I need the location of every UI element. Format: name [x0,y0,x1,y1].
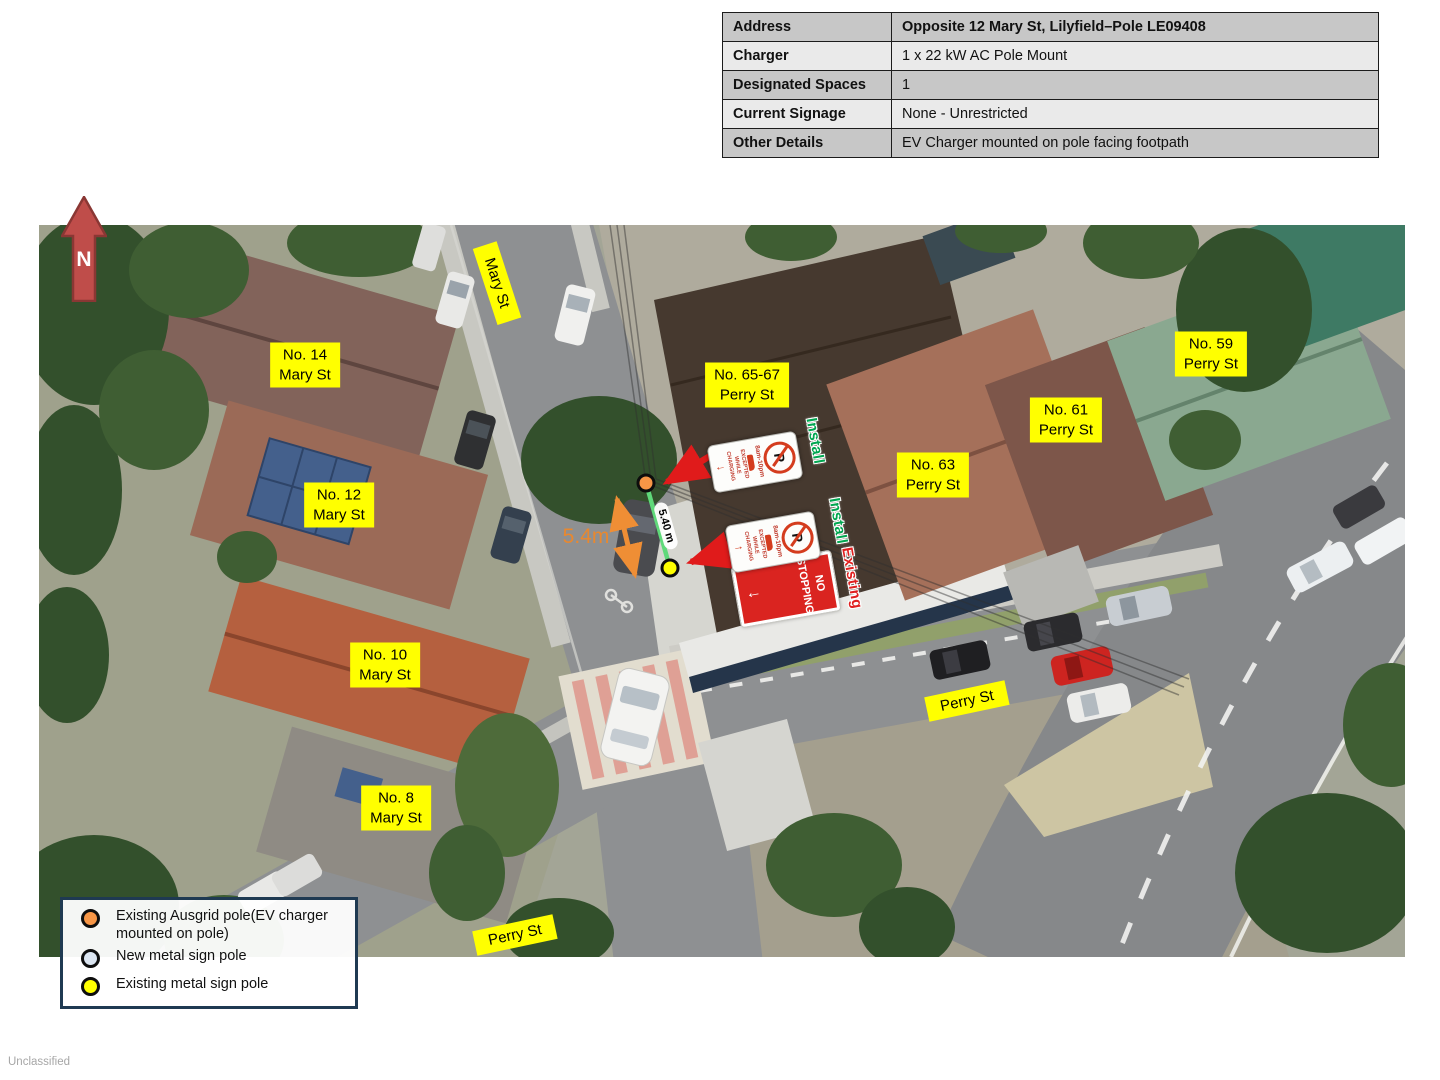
row-value: 1 x 22 kW AC Pole Mount [892,42,1379,71]
legend-item-text: New metal sign pole [116,948,247,966]
sign-exception: EXCEPTED WHILE CHARGING [741,524,768,567]
legend-item-text: Existing metal sign pole [116,976,268,994]
existing-metal-sign-pole-marker [661,559,680,578]
row-value: Opposite 12 Mary St, Lilyfield–Pole LE09… [892,13,1379,42]
house-label-59-perry: No. 59Perry St [1175,332,1247,377]
table-row: Designated Spaces 1 [723,71,1379,100]
house-label-12-mary: No. 12Mary St [304,483,374,528]
row-label: Designated Spaces [723,71,892,100]
existing-sign-pole-legend-icon [81,977,100,996]
house-label-10-mary: No. 10Mary St [350,643,420,688]
house-label-8-mary: No. 8Mary St [361,786,431,831]
new-sign-pole-legend-icon [81,949,100,968]
sign-zone-arrow-up: ↑ [732,545,744,552]
table-row: Current Signage None - Unrestricted [723,100,1379,129]
table-row: Other Details EV Charger mounted on pole… [723,129,1379,158]
north-arrow: N [61,196,107,302]
classification-marking: Unclassified [8,1056,70,1068]
legend-item-text: Existing Ausgrid pole(EV charger mounted… [116,908,346,943]
existing-ausgrid-pole-marker [637,474,656,493]
row-value: EV Charger mounted on pole facing footpa… [892,129,1379,158]
map-legend: Existing Ausgrid pole(EV charger mounted… [60,897,358,1009]
row-value: 1 [892,71,1379,100]
no-stopping-arrow: ↓ [745,589,762,600]
legend-item: New metal sign pole [73,948,349,968]
house-label-61-perry: No. 61Perry St [1030,398,1102,443]
distance-arrow-label: 5.4m [563,525,610,549]
no-stopping-text: NO STOPPING [792,554,831,615]
sign-zone-arrow-down: ↓ [714,465,726,472]
table-row: Address Opposite 12 Mary St, Lilyfield–P… [723,13,1379,42]
site-info-table: Address Opposite 12 Mary St, Lilyfield–P… [722,12,1379,158]
north-letter: N [76,248,91,271]
ausgrid-pole-legend-icon [81,909,100,928]
house-label-14-mary: No. 14Mary St [270,343,340,388]
row-label: Address [723,13,892,42]
house-label-63-perry: No. 63Perry St [897,453,969,498]
legend-item: Existing Ausgrid pole(EV charger mounted… [73,908,349,943]
row-label: Other Details [723,129,892,158]
house-label-65-67-perry: No. 65-67Perry St [705,363,789,408]
legend-item: Existing metal sign pole [73,976,349,996]
row-label: Charger [723,42,892,71]
no-parking-symbol: P [761,439,798,476]
table-row: Charger 1 x 22 kW AC Pole Mount [723,42,1379,71]
row-value: None - Unrestricted [892,100,1379,129]
sign-exception: EXCEPTED WHILE CHARGING [723,444,750,487]
no-parking-symbol: P [779,519,816,556]
aerial-map: 5.40 m 5.4m P 8am-10pm EXCEPTED WHILE CH… [39,225,1405,957]
row-label: Current Signage [723,100,892,129]
